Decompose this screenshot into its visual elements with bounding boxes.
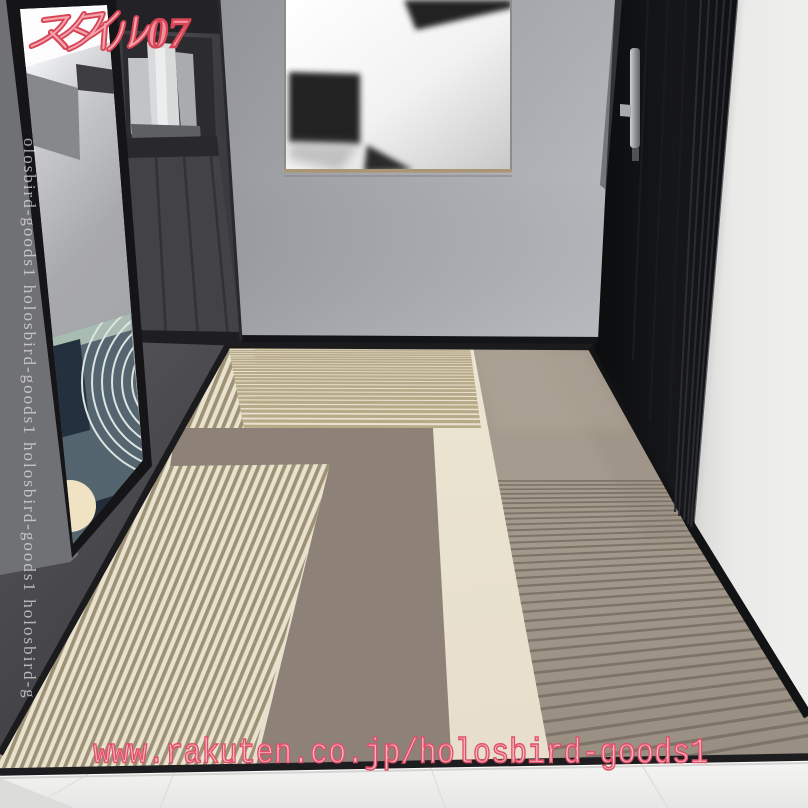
svg-text:07: 07 xyxy=(144,10,193,57)
svg-text:olosbird-goods1 holosbird-good: olosbird-goods1 holosbird-goods1 holosbi… xyxy=(20,138,39,700)
svg-text:www.rakuten.co.jp/holosbird-go: www.rakuten.co.jp/holosbird-goods1 xyxy=(93,733,708,773)
